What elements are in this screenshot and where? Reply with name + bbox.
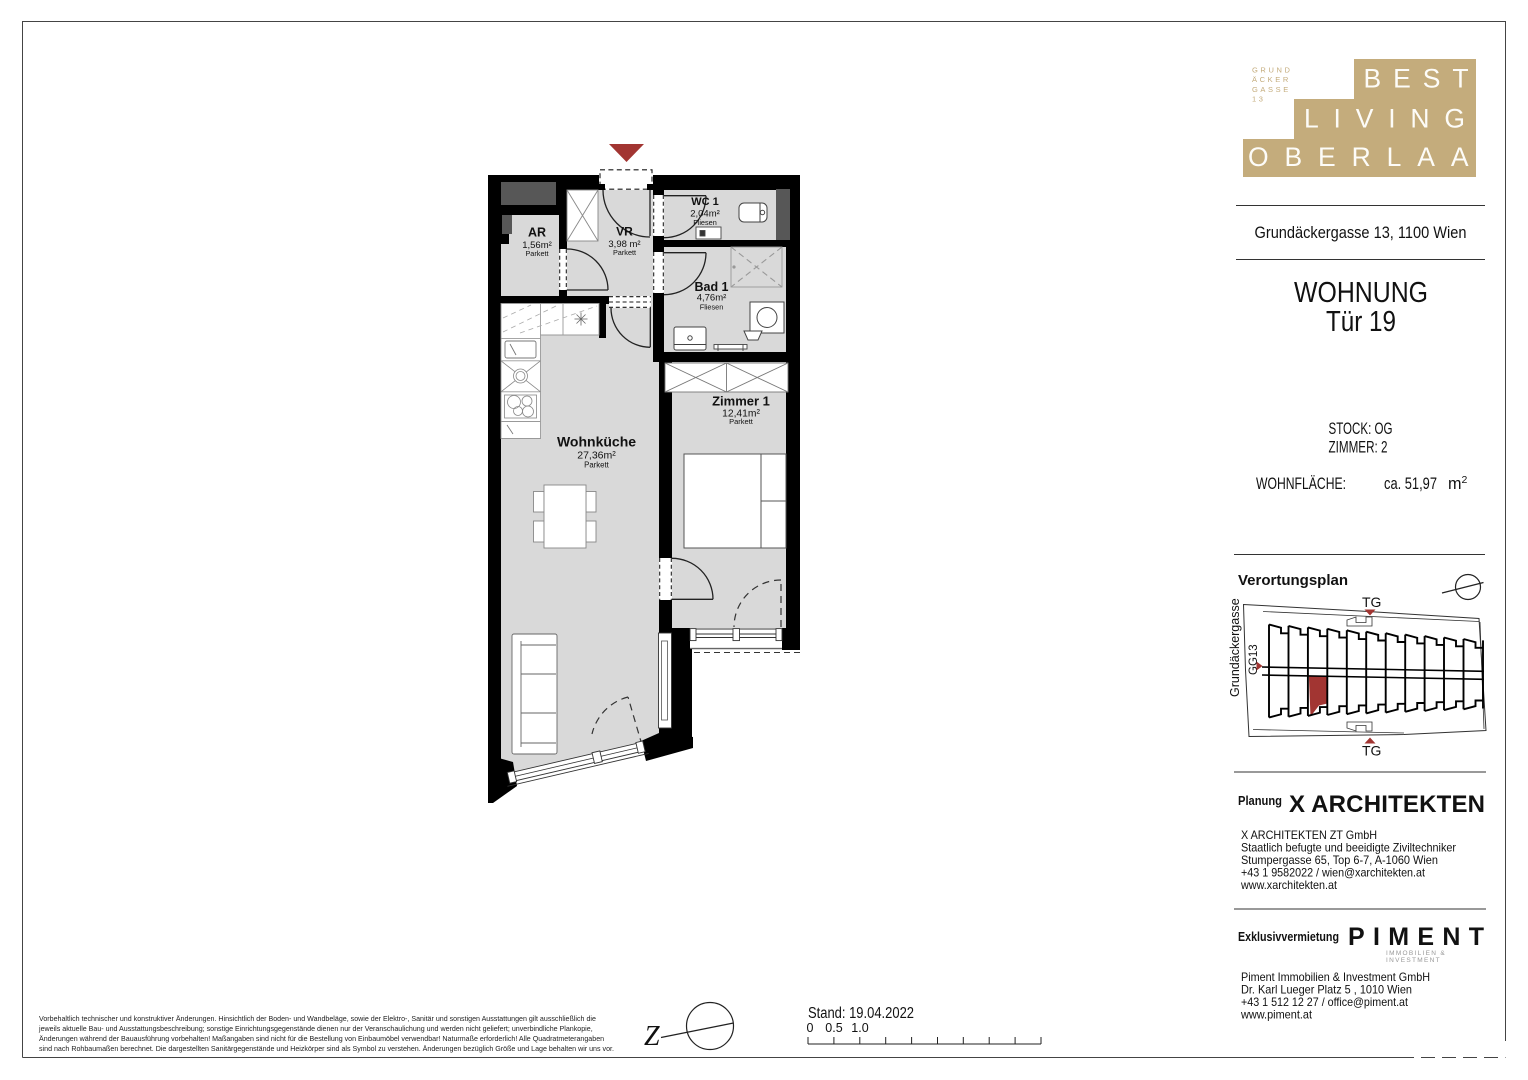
svg-text:Verortungsplan: Verortungsplan bbox=[1238, 572, 1348, 589]
svg-text:Fliesen: Fliesen bbox=[693, 218, 717, 227]
svg-text:Zimmer 1: Zimmer 1 bbox=[712, 394, 770, 409]
svg-text:Wohnküche: Wohnküche bbox=[557, 434, 636, 450]
svg-text:ca. 51,97: ca. 51,97 bbox=[1384, 475, 1437, 493]
svg-text:GASSE: GASSE bbox=[1252, 85, 1291, 94]
svg-text:Vorbehaltlich technischer und: Vorbehaltlich technischer und konstrukti… bbox=[39, 1015, 596, 1023]
svg-text:ZIMMER: 2: ZIMMER: 2 bbox=[1329, 439, 1388, 457]
svg-text:m: m bbox=[1448, 475, 1461, 493]
svg-text:Planung: Planung bbox=[1238, 794, 1282, 808]
svg-text:VR: VR bbox=[616, 225, 633, 239]
svg-text:Z: Z bbox=[644, 1021, 660, 1052]
svg-text:sind nach Rohbaumaßen berechne: sind nach Rohbaumaßen berechnet. Die dar… bbox=[39, 1045, 614, 1053]
svg-text:13: 13 bbox=[1252, 95, 1266, 104]
svg-text:Parkett: Parkett bbox=[584, 461, 610, 470]
svg-text:GG13: GG13 bbox=[1248, 644, 1260, 675]
svg-text:GRUND: GRUND bbox=[1252, 66, 1293, 75]
svg-text:INVESTMENT: INVESTMENT bbox=[1386, 957, 1441, 964]
svg-text:PIMENT: PIMENT bbox=[1348, 923, 1484, 951]
svg-text:www.piment.at: www.piment.at bbox=[1240, 1008, 1313, 1022]
svg-text:WC 1: WC 1 bbox=[691, 196, 719, 208]
svg-text:Fliesen: Fliesen bbox=[700, 303, 724, 312]
svg-text:Stand: 19.04.2022: Stand: 19.04.2022 bbox=[808, 1005, 914, 1022]
svg-text:AR: AR bbox=[528, 226, 546, 240]
svg-text:0.5: 0.5 bbox=[825, 1021, 842, 1035]
svg-text:Parkett: Parkett bbox=[613, 248, 636, 257]
svg-text:Änderungen während der Bauausf: Änderungen während der Bauausführung vor… bbox=[39, 1035, 604, 1043]
svg-text:WOHNFLÄCHE:: WOHNFLÄCHE: bbox=[1256, 475, 1346, 493]
svg-text:Parkett: Parkett bbox=[729, 417, 754, 426]
svg-text:STOCK: OG: STOCK: OG bbox=[1329, 420, 1393, 438]
svg-text:TG: TG bbox=[1362, 594, 1381, 610]
svg-text:WOHNUNG: WOHNUNG bbox=[1294, 277, 1428, 309]
svg-text:0: 0 bbox=[807, 1021, 814, 1035]
svg-text:ÄCKER: ÄCKER bbox=[1252, 75, 1291, 84]
svg-text:Exklusivvermietung: Exklusivvermietung bbox=[1238, 930, 1339, 944]
svg-text:www.xarchitekten.at: www.xarchitekten.at bbox=[1240, 878, 1338, 892]
svg-text:jeweils aktuelle Bau- und Auss: jeweils aktuelle Bau- und Ausstattungsbe… bbox=[38, 1025, 593, 1033]
svg-text:Grundäckergasse: Grundäckergasse bbox=[1228, 598, 1242, 697]
svg-text:Parkett: Parkett bbox=[525, 249, 548, 258]
svg-text:2: 2 bbox=[1462, 474, 1468, 486]
svg-text:Tür 19: Tür 19 bbox=[1326, 306, 1396, 338]
svg-text:IMMOBILIEN &: IMMOBILIEN & bbox=[1386, 950, 1446, 957]
svg-text:X ARCHITEKTEN: X ARCHITEKTEN bbox=[1289, 791, 1485, 818]
svg-text:1.0: 1.0 bbox=[851, 1021, 868, 1035]
svg-text:TG: TG bbox=[1362, 743, 1381, 759]
svg-text:Grundäckergasse 13, 1100 Wien: Grundäckergasse 13, 1100 Wien bbox=[1255, 224, 1467, 242]
